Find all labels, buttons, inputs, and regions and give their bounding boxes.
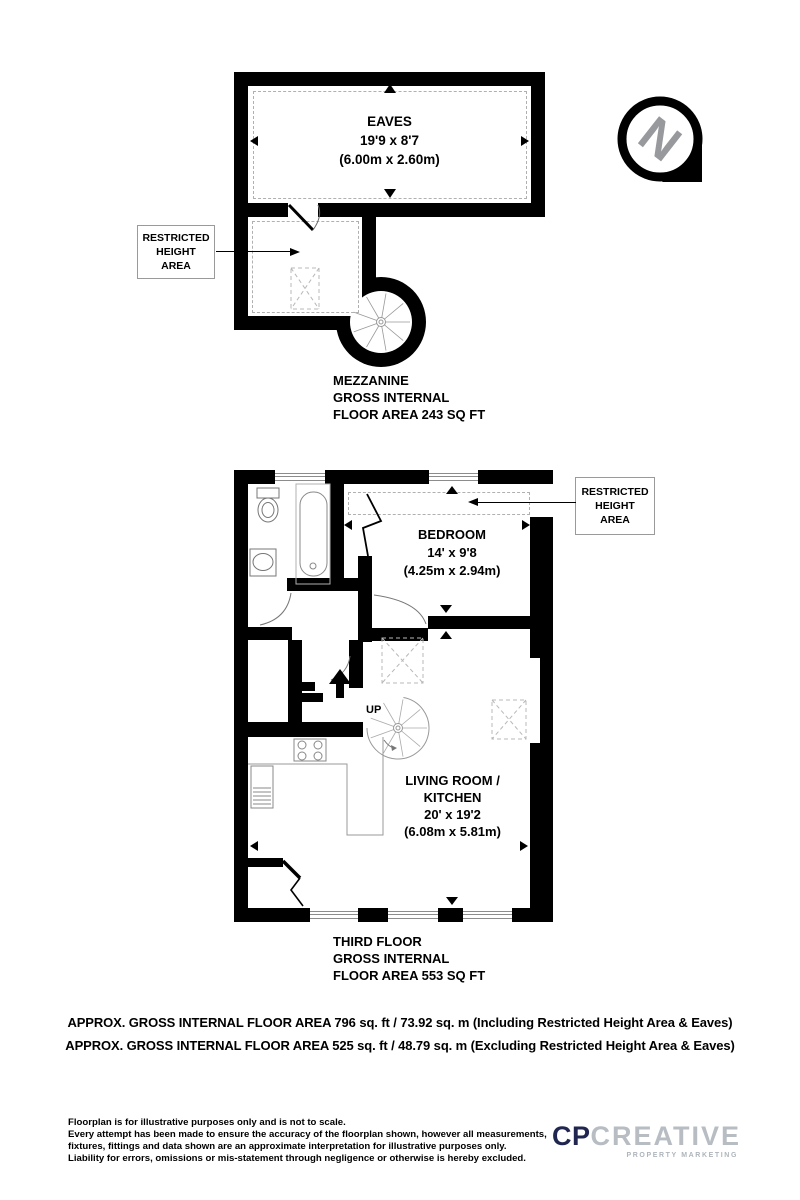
appliance-icon — [251, 766, 273, 808]
summary-line-including: APPROX. GROSS INTERNAL FLOOR AREA 796 sq… — [0, 1015, 800, 1030]
bathtub-icon — [296, 484, 330, 584]
disclaimer-line: Every attempt has been made to ensure th… — [68, 1129, 547, 1141]
disclaimer-line: fixtures, fittings and data shown are an… — [68, 1141, 547, 1153]
toilet-icon — [257, 488, 279, 522]
logo-tagline: PROPERTY MARKETING — [552, 1152, 738, 1159]
disclaimer-text: Floorplan is for illustrative purposes o… — [68, 1117, 547, 1165]
logo-name: CREATIVE — [591, 1121, 742, 1151]
disclaimer-line: Liability for errors, omissions or mis-s… — [68, 1153, 547, 1165]
hob-icon — [294, 739, 326, 761]
sink-icon — [250, 549, 276, 576]
spiral-stair-icon — [367, 698, 429, 760]
summary-line-excluding: APPROX. GROSS INTERNAL FLOOR AREA 525 sq… — [0, 1038, 800, 1053]
entry-up-arrow-icon — [329, 669, 351, 698]
bay-opening — [283, 861, 303, 906]
floorplan-page: EAVES 19'9 x 8'7 (6.00m x 2.60m) RESTRIC… — [0, 0, 800, 1200]
door-arc — [260, 593, 426, 680]
logo-prefix: CP — [552, 1121, 591, 1151]
door-icon — [289, 205, 320, 230]
cp-creative-logo: CPCREATIVE PROPERTY MARKETING — [552, 1122, 738, 1159]
opening-zigzag — [363, 494, 381, 556]
disclaimer-line: Floorplan is for illustrative purposes o… — [68, 1117, 547, 1129]
